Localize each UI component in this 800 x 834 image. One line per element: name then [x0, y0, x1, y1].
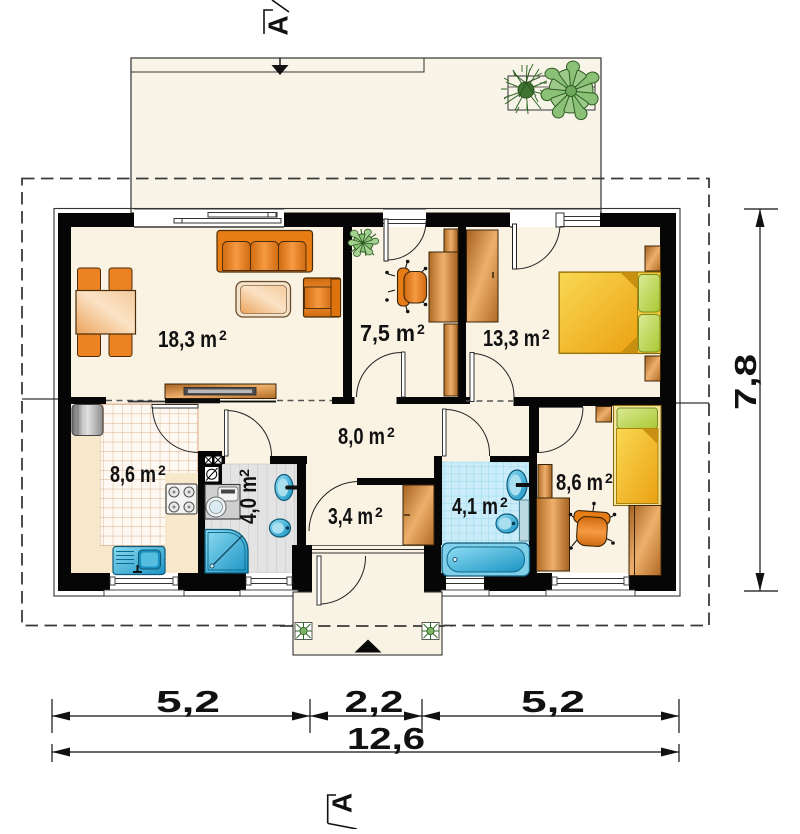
svg-text:7,8: 7,8	[728, 354, 763, 410]
svg-text:2: 2	[542, 326, 550, 342]
svg-text:12,6: 12,6	[347, 721, 425, 756]
svg-text:5,2: 5,2	[156, 684, 220, 719]
svg-text:8,6 m: 8,6 m	[110, 461, 156, 487]
svg-text:5,2: 5,2	[521, 684, 585, 719]
svg-text:18,3 m: 18,3 m	[158, 326, 217, 352]
svg-text:3,4 m: 3,4 m	[328, 503, 373, 529]
svg-text:4,0 m: 4,0 m	[235, 476, 261, 524]
svg-text:2: 2	[500, 494, 508, 510]
svg-text:8,6 m: 8,6 m	[556, 469, 603, 495]
svg-text:8,0 m: 8,0 m	[338, 423, 385, 449]
svg-text:2: 2	[387, 424, 395, 440]
svg-text:13,3 m: 13,3 m	[483, 325, 540, 351]
svg-text:7,5 m: 7,5 m	[360, 320, 415, 346]
svg-text:2,2: 2,2	[345, 684, 404, 719]
svg-text:A: A	[327, 793, 358, 813]
svg-text:A: A	[263, 15, 294, 35]
svg-text:2: 2	[219, 327, 227, 343]
svg-text:4,1 m: 4,1 m	[452, 493, 498, 519]
svg-text:2: 2	[236, 469, 252, 477]
svg-text:2: 2	[375, 504, 383, 520]
svg-text:2: 2	[417, 321, 425, 337]
svg-text:2: 2	[158, 462, 166, 478]
svg-text:2: 2	[605, 470, 613, 486]
